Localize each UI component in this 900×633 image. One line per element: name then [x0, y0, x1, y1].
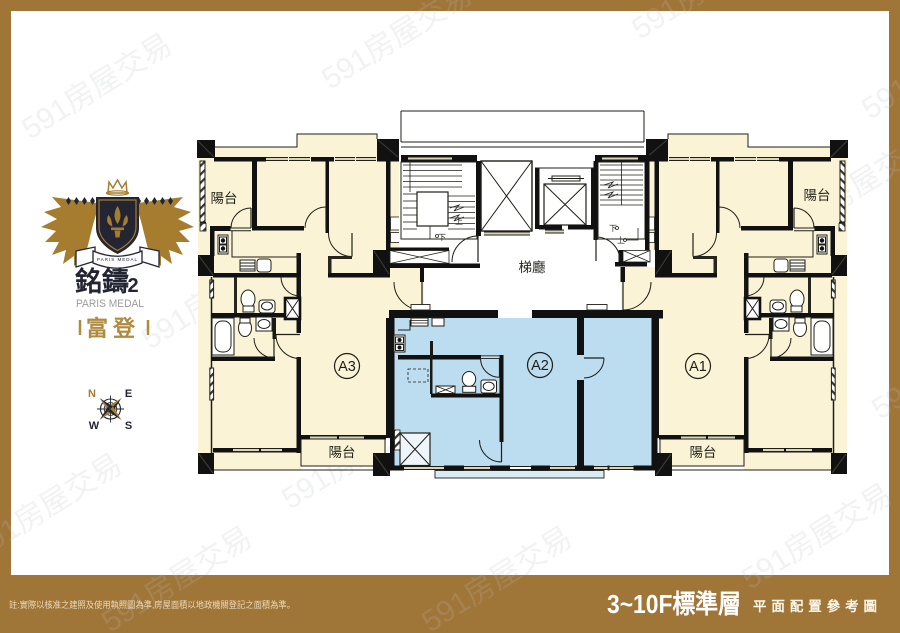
svg-text:N: N: [88, 388, 96, 400]
svg-text:PARIS MEDAL: PARIS MEDAL: [97, 257, 138, 262]
svg-text:W: W: [89, 420, 100, 432]
svg-text:銘鑄: 銘鑄: [75, 266, 129, 297]
svg-text:陽台: 陽台: [329, 445, 356, 460]
svg-text:A3: A3: [338, 359, 356, 375]
svg-text:註:實際以核准之建照及使用執照圖為準,房屋面積以地政機關登記: 註:實際以核准之建照及使用執照圖為準,房屋面積以地政機關登記之面積為準。: [9, 599, 295, 610]
svg-text:A1: A1: [689, 359, 707, 375]
svg-text:平面配置參考圖: 平面配置參考圖: [753, 598, 877, 614]
svg-text:下: 下: [438, 233, 446, 242]
svg-text:陽台: 陽台: [804, 188, 831, 203]
svg-text:陽台: 陽台: [211, 191, 238, 206]
svg-text:富登: 富登: [86, 316, 140, 341]
svg-text:PARIS MEDAL: PARIS MEDAL: [76, 298, 144, 310]
svg-text:梯廳: 梯廳: [519, 259, 546, 275]
svg-text:E: E: [125, 388, 132, 400]
svg-text:2: 2: [127, 275, 138, 297]
svg-text:S: S: [125, 420, 132, 432]
svg-text:陽台: 陽台: [690, 445, 717, 460]
svg-text:3~10F標準層: 3~10F標準層: [607, 589, 741, 619]
svg-text:A2: A2: [531, 358, 549, 374]
svg-text:上: 上: [455, 217, 463, 226]
